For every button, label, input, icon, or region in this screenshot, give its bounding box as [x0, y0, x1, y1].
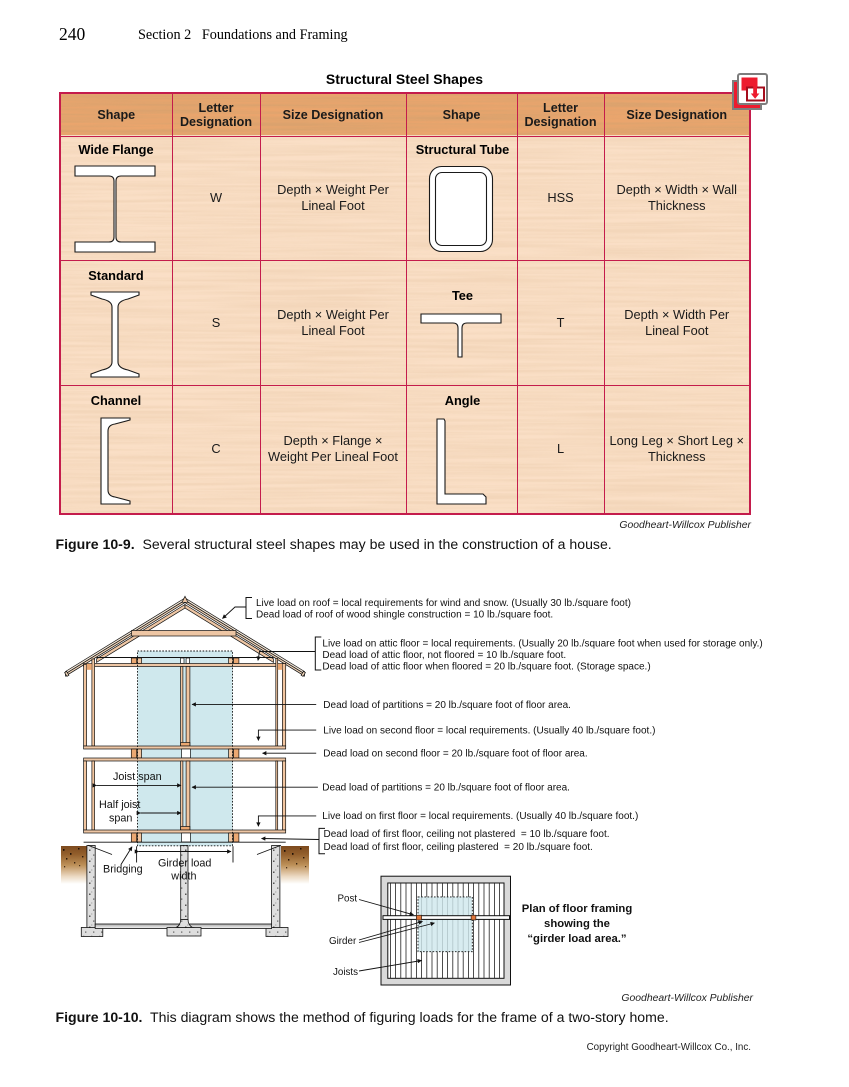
svg-text:width: width — [170, 871, 196, 883]
svg-text:Half joist: Half joist — [99, 799, 140, 811]
svg-text:Dead load of roof of wood shin: Dead load of roof of wood shingle constr… — [256, 610, 553, 621]
svg-text:Live load on first floor = loc: Live load on first floor = local require… — [322, 811, 638, 822]
svg-text:Dead load of first floor, ceil: Dead load of first floor, ceiling not pl… — [324, 829, 610, 840]
svg-text:Dead load of partitions = 20 l: Dead load of partitions = 20 lb./square … — [323, 700, 571, 711]
svg-text:span: span — [109, 813, 132, 825]
svg-text:Live load on roof = local requ: Live load on roof = local requirements f… — [256, 598, 631, 609]
svg-text:Post: Post — [338, 894, 358, 905]
svg-text:Girder load: Girder load — [158, 858, 211, 870]
svg-text:“girder load area.”: “girder load area.” — [527, 933, 626, 945]
svg-text:Joists: Joists — [333, 967, 358, 978]
svg-text:showing the: showing the — [544, 918, 610, 930]
svg-text:Joist span: Joist span — [113, 771, 162, 783]
svg-text:Live load on attic floor = loc: Live load on attic floor = local require… — [322, 638, 762, 649]
svg-text:Girder: Girder — [329, 936, 357, 947]
svg-text:Bridging: Bridging — [103, 864, 143, 876]
svg-text:Plan of floor framing: Plan of floor framing — [522, 903, 633, 915]
svg-text:Dead load of partitions = 20 l: Dead load of partitions = 20 lb./square … — [322, 783, 570, 794]
svg-text:Dead load of attic floor when: Dead load of attic floor when floored = … — [322, 662, 650, 673]
svg-text:Live load on second floor = lo: Live load on second floor = local requir… — [323, 725, 655, 736]
svg-text:Dead load on second floor = 20: Dead load on second floor = 20 lb./squar… — [323, 749, 587, 760]
svg-text:Dead load of first floor, ceil: Dead load of first floor, ceiling plaste… — [324, 842, 593, 853]
svg-text:Dead load of attic floor, not: Dead load of attic floor, not floored = … — [322, 650, 566, 661]
